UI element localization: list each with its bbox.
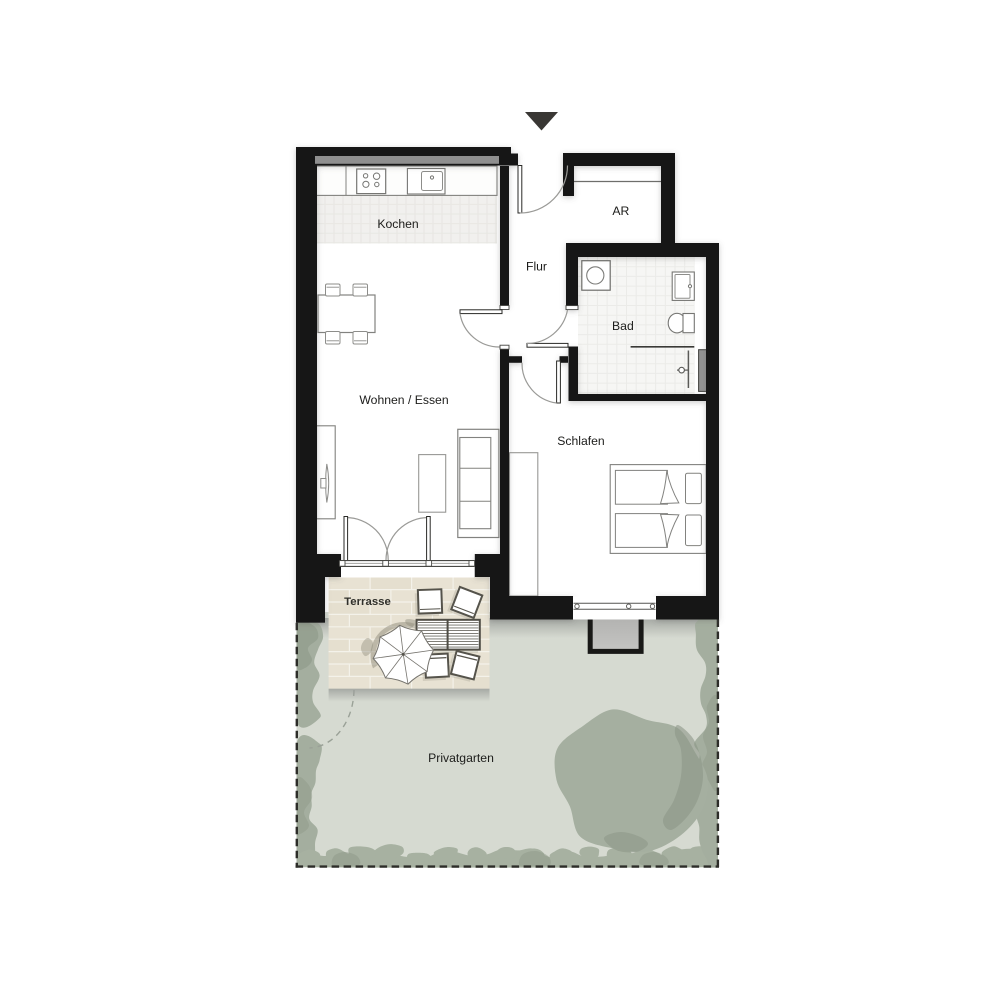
svg-text:Wohnen / Essen: Wohnen / Essen	[359, 393, 448, 407]
svg-text:Schlafen: Schlafen	[557, 434, 604, 448]
svg-text:Kochen: Kochen	[377, 217, 418, 231]
svg-text:Terrasse: Terrasse	[344, 596, 391, 608]
svg-text:Privatgarten: Privatgarten	[428, 751, 494, 765]
svg-text:Flur: Flur	[526, 260, 547, 274]
svg-text:AR: AR	[612, 204, 629, 218]
svg-text:Bad: Bad	[612, 319, 634, 333]
